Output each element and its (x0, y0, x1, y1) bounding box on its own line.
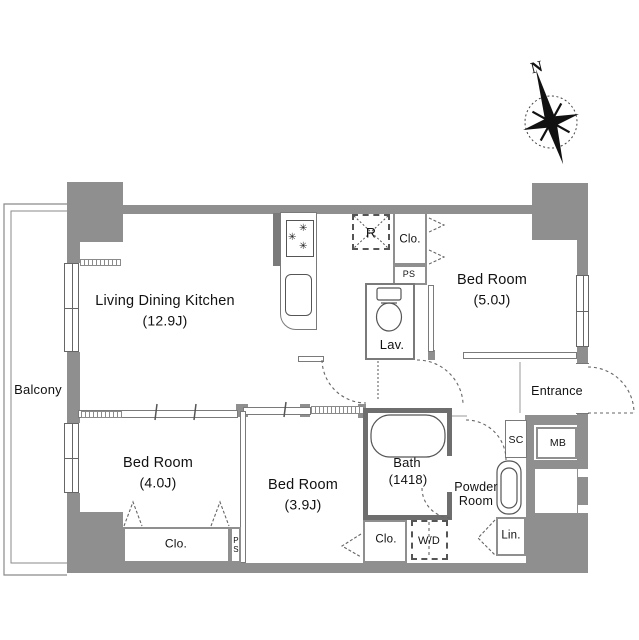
door-arc-entrance (588, 367, 634, 413)
stove-burner-icon: ✳ (299, 242, 307, 252)
room-label-bedroom4: Bed Room (123, 456, 193, 472)
window (64, 423, 79, 493)
fixture-label-refrigerator: R (366, 225, 376, 240)
window-mid-tick (577, 311, 588, 312)
wall-segment (532, 183, 588, 240)
room-label-powder2: Room (459, 495, 493, 509)
window (576, 275, 589, 347)
compass-north-label: N (529, 58, 545, 78)
wall-segment (577, 240, 588, 275)
partition-wall (463, 352, 577, 359)
wall-segment (577, 347, 588, 364)
compass-icon (508, 61, 591, 172)
window-mid-tick (65, 458, 78, 459)
partition-wall (428, 285, 434, 352)
wall-segment (526, 518, 588, 563)
wall-segment (525, 415, 588, 425)
bath-door-opening (446, 456, 453, 492)
fixture-label-meter-box: MB (550, 438, 566, 450)
room-label-powder1: Powder (454, 481, 498, 495)
closet-door-mark (429, 250, 444, 264)
room-size-bedroom39: (3.9J) (285, 497, 322, 512)
wall-segment (67, 563, 588, 573)
wall-segment (67, 182, 123, 242)
fixture-label-closet-bed5: Clo. (399, 234, 420, 247)
closet-door-mark (429, 218, 444, 232)
balcony-label: Balcony (14, 383, 62, 397)
sliding-door-hatch (81, 411, 122, 418)
stove-burner-icon: ✳ (288, 233, 296, 243)
wall-segment (67, 493, 80, 563)
door-arc-ldk-hall (322, 360, 366, 403)
door-arc-powder-room (466, 420, 506, 460)
sliding-door-hatch (80, 259, 121, 266)
room-size-ldk: (12.9J) (143, 313, 188, 328)
room-label-bedroom39: Bed Room (268, 478, 338, 494)
room-size-bedroom5: (5.0J) (474, 292, 511, 307)
fixture-label-washer-dryer: W/D (418, 535, 440, 547)
room-label-bath: Bath (393, 456, 421, 470)
stove-burner-icon: ✳ (299, 224, 307, 234)
floor-plan: ✳ ✳ ✳ (0, 0, 639, 640)
door-arc-bedroom5 (417, 360, 463, 403)
fixture-label-linen: Lin. (501, 530, 520, 543)
wall-segment (67, 242, 80, 263)
room-label-ldk: Living Dining Kitchen (95, 294, 235, 310)
room-label-lavatory: Lav. (380, 338, 404, 352)
wall-segment (80, 512, 123, 563)
room-label-bedroom5: Bed Room (457, 273, 527, 289)
folding-door-mark (124, 502, 142, 526)
wall-segment (526, 423, 534, 520)
window-mid-tick (65, 308, 78, 309)
fixture-label-shoe-closet: SC (509, 435, 524, 447)
room-size-bedroom4: (4.0J) (140, 475, 177, 490)
partition-wall (243, 407, 311, 415)
fixture-label-closet-bed4: Clo. (165, 537, 187, 550)
wall-segment (534, 460, 588, 468)
wall-segment (123, 205, 588, 214)
fixture-label-ps-top: PS (403, 270, 415, 280)
washbasin-bowl-icon (501, 468, 517, 508)
folding-door-mark (342, 534, 361, 557)
partition-wall (298, 356, 324, 362)
sliding-door-hatch (311, 406, 363, 414)
room-size-bath: (1418) (389, 473, 428, 487)
folding-door-mark (478, 520, 495, 555)
wall-notch (578, 469, 588, 477)
kitchen-sink-icon (285, 274, 312, 316)
fixture-label-closet-bed39: Clo. (375, 534, 396, 547)
room-label-entrance: Entrance (531, 385, 583, 399)
utility-box (534, 468, 578, 514)
wall-notch (578, 505, 588, 513)
fixture-label-ps-bottom: PS (231, 536, 240, 554)
washbasin-icon (497, 461, 521, 514)
stove-icon: ✳ ✳ ✳ (286, 220, 314, 257)
window (64, 263, 79, 352)
folding-door-mark (211, 502, 229, 526)
